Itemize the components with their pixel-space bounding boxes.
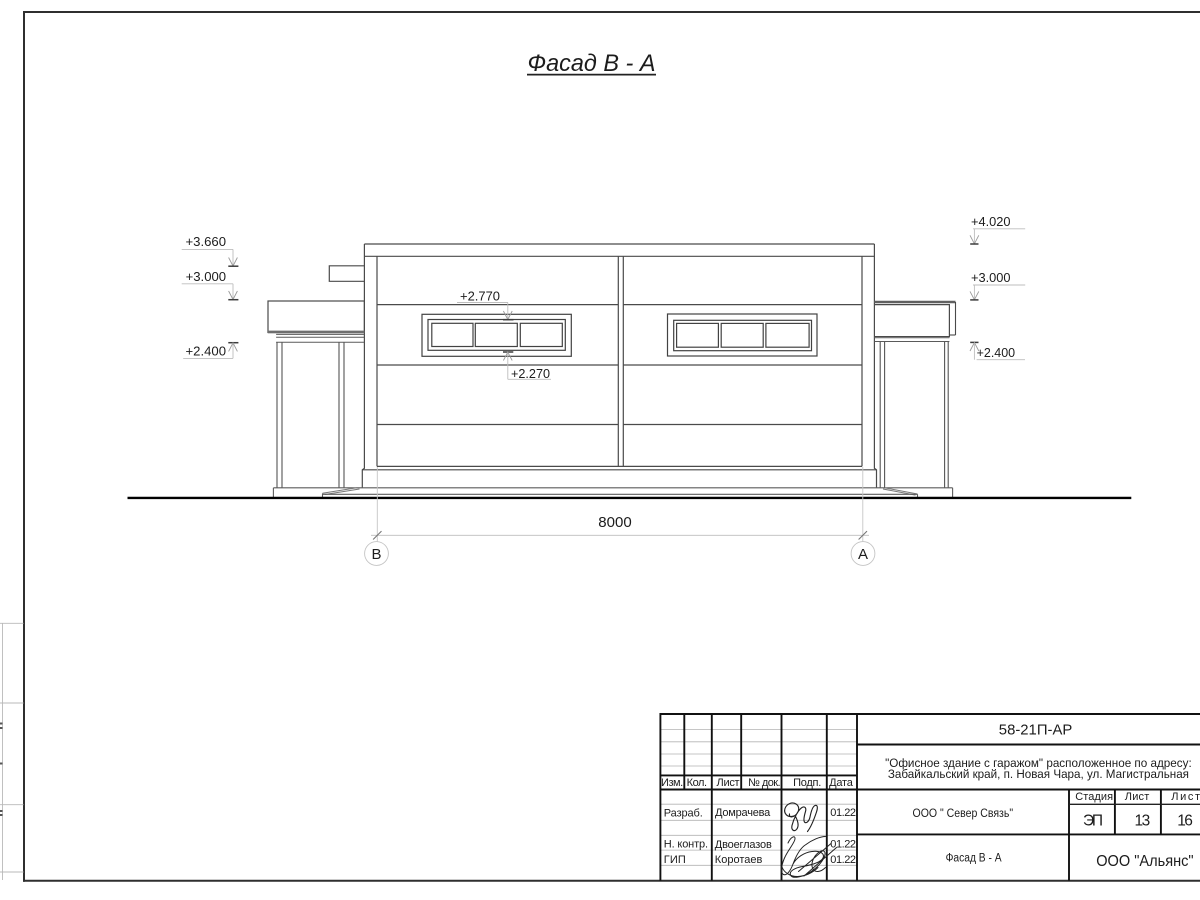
svg-text:+3.000: +3.000 — [186, 269, 227, 284]
svg-text:8000: 8000 — [598, 514, 631, 531]
svg-text:+4.020: +4.020 — [971, 214, 1011, 229]
svg-text:А: А — [858, 546, 868, 563]
svg-text:Н. контр.: Н. контр. — [664, 839, 708, 851]
svg-text:Кол.: Кол. — [687, 777, 708, 789]
svg-text:Фасад В - А: Фасад В - А — [528, 50, 656, 77]
svg-text:Листов: Листов — [1171, 791, 1200, 803]
svg-text:16: 16 — [1177, 812, 1193, 829]
svg-text:ООО " Север Связь": ООО " Север Связь" — [913, 808, 1014, 820]
svg-text:01.22: 01.22 — [830, 807, 856, 819]
svg-text:+2.400: +2.400 — [977, 345, 1016, 360]
svg-text:Коротаев: Коротаев — [715, 854, 763, 866]
svg-text:+2.400: +2.400 — [186, 343, 227, 358]
svg-text:Подп.: Подп. — [793, 777, 821, 789]
svg-text:58-21П-АР: 58-21П-АР — [999, 722, 1073, 738]
svg-text:Домрачева: Домрачева — [715, 807, 771, 819]
svg-text:Лист: Лист — [717, 777, 740, 789]
svg-text:+2.770: +2.770 — [460, 289, 500, 304]
svg-text:Фасад В - А: Фасад В - А — [946, 853, 1002, 865]
svg-text:Дата: Дата — [829, 777, 854, 789]
svg-text:ООО "Альянс": ООО "Альянс" — [1096, 853, 1193, 870]
svg-text:ГИП: ГИП — [664, 854, 686, 866]
svg-text:В: В — [371, 546, 381, 563]
svg-text:01.22: 01.22 — [830, 838, 856, 850]
svg-text:Разраб.: Разраб. — [664, 807, 703, 819]
svg-text:+3.660: +3.660 — [186, 234, 227, 249]
svg-text:ЭП: ЭП — [1083, 812, 1103, 829]
svg-text:Забайкальский край, п. Новая Ч: Забайкальский край, п. Новая Чара, ул. М… — [888, 767, 1189, 781]
svg-text:+3.000: +3.000 — [971, 270, 1011, 285]
svg-text:Изм.: Изм. — [661, 777, 683, 789]
svg-text:Двоеглазов: Двоеглазов — [715, 839, 772, 851]
svg-text:Лист: Лист — [1125, 791, 1150, 803]
svg-text:13: 13 — [1135, 812, 1151, 829]
svg-text:№ док.: № док. — [748, 777, 781, 789]
svg-text:Стадия: Стадия — [1075, 791, 1113, 803]
svg-text:01.22: 01.22 — [830, 854, 856, 866]
